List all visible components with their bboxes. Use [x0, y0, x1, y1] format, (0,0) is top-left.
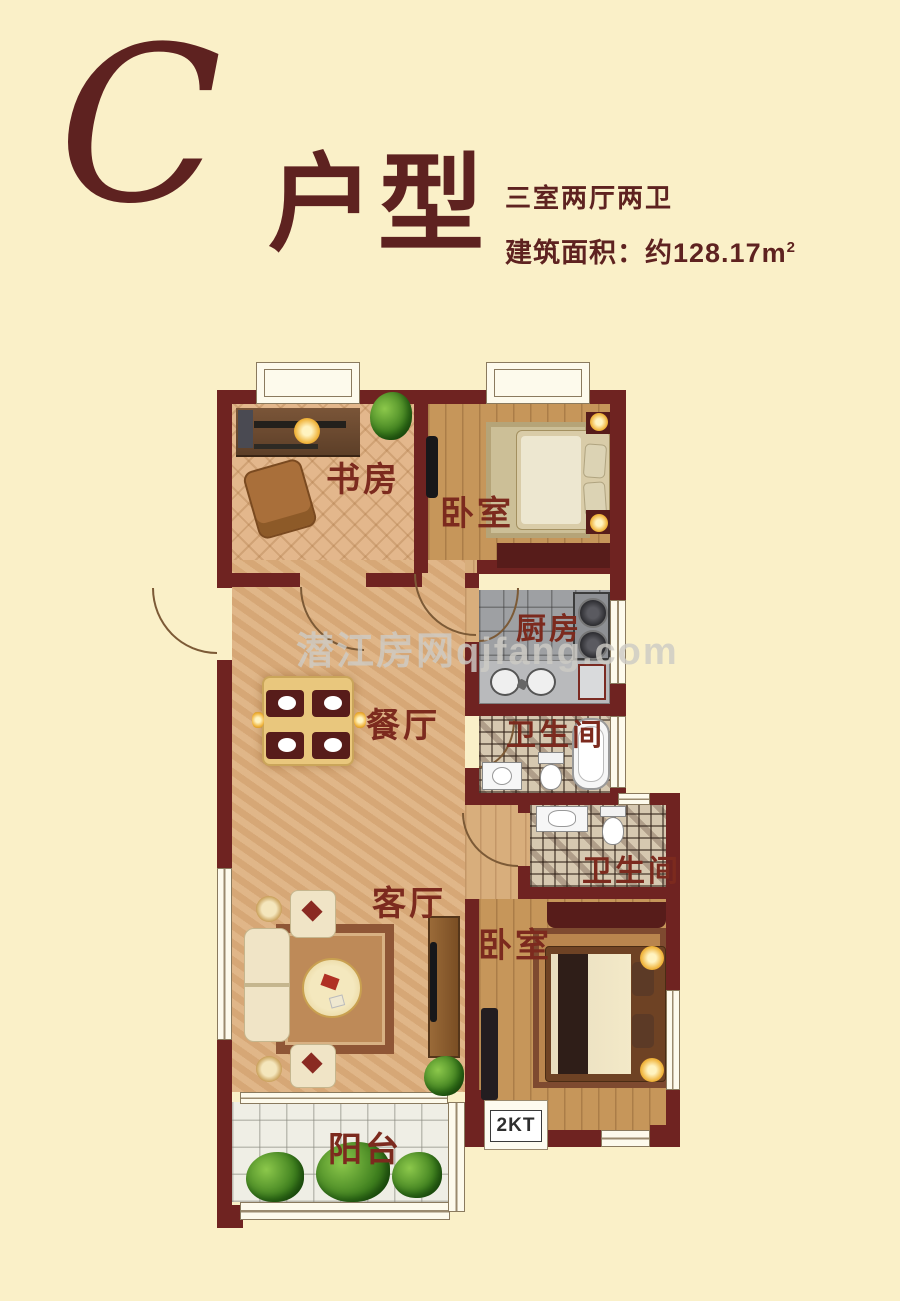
bath-bottom-sink-basin	[548, 810, 576, 827]
dining-side-item-right	[354, 712, 366, 728]
bedroom-bottom-pillow-2	[632, 1014, 654, 1048]
toilet-top-bowl	[540, 764, 562, 790]
wall-left-lower	[217, 1040, 232, 1228]
balcony-railing-bottom	[240, 1202, 450, 1220]
dining-plate-3	[278, 738, 296, 752]
bay-window-study-inner	[264, 369, 352, 397]
room-label-study: 书房	[326, 452, 400, 501]
entry-door-arc	[152, 588, 217, 654]
bedroom-bottom-dresser	[547, 902, 666, 928]
bedroom-top-mattress	[521, 436, 581, 524]
balcony-sliding-door	[240, 1092, 448, 1104]
bedroom-top-dresser	[497, 543, 610, 568]
window-bedroom-bottom-right	[666, 990, 680, 1090]
wall-left-middle	[217, 660, 232, 870]
window-bedroom-bottom-bottom	[601, 1130, 650, 1147]
dining-plate-2	[324, 696, 342, 710]
study-plant	[370, 392, 412, 440]
toilet-bottom-tank	[600, 806, 626, 817]
bedroom-top-pillow-1	[583, 443, 607, 478]
study-lamp	[294, 418, 320, 444]
bedroom-bottom-blanket	[558, 954, 588, 1074]
area-text: 建筑面积：约128.17m2	[505, 231, 796, 270]
balcony-plant-1	[246, 1152, 304, 1202]
area-value: 128.17m	[673, 238, 787, 268]
watermark: 潜江房网qjfang.com	[296, 620, 679, 675]
living-plant	[424, 1056, 464, 1096]
wall-study-bottom-left	[217, 573, 300, 587]
sofa-main	[244, 928, 290, 1042]
dining-side-item-left	[252, 712, 264, 728]
dining-plate-4	[324, 738, 342, 752]
study-shelf-2	[254, 444, 318, 449]
page-title: 户型	[268, 118, 488, 272]
bedroom-bottom-lamp-1	[640, 946, 664, 970]
window-bath-bottom	[618, 793, 650, 805]
entry-opening	[217, 588, 232, 660]
wall-bath-bottom-left	[518, 866, 530, 899]
wall-right-upper	[610, 390, 626, 600]
wall-bath-top-bottom-a	[465, 793, 618, 805]
ac-platform-label: 2KT	[490, 1110, 542, 1142]
study-cabinet	[238, 410, 253, 448]
room-label-bedroom-top: 卧室	[440, 486, 514, 535]
bedroom-top-tv	[426, 436, 438, 498]
wall-bath-top-bottom-b	[650, 793, 680, 805]
bath-top-sink-basin	[492, 767, 512, 785]
balcony-railing-right	[448, 1102, 465, 1212]
room-label-dining: 餐厅	[366, 698, 440, 747]
header-info: 三室两厅两卫 建筑面积：约128.17m2	[505, 178, 796, 270]
living-lamp-bottom	[256, 1056, 282, 1082]
wall-bath-bottom-left-stub	[518, 805, 530, 813]
wall-bedroom-bottom-left	[465, 899, 479, 1105]
spec-text: 三室两厅两卫	[505, 178, 796, 215]
dining-plate-1	[278, 696, 296, 710]
wall-left-upper	[217, 390, 232, 590]
area-superscript: 2	[787, 239, 796, 256]
room-label-bath-bottom: 卫生间	[582, 846, 681, 890]
room-label-bedroom-bottom: 卧室	[478, 918, 552, 967]
toilet-bottom-bowl	[602, 817, 624, 845]
bedroom-bottom-lamp-2	[640, 1058, 664, 1082]
wall-bottom-right-corner	[650, 1125, 680, 1147]
room-label-bath-top: 卫生间	[506, 710, 605, 754]
room-label-balcony: 阳台	[328, 1122, 402, 1171]
wall-bedroom-bottom-bottom	[545, 1130, 601, 1147]
bedroom-top-lamp-2	[590, 514, 608, 532]
bedroom-bottom-wardrobe	[481, 1008, 498, 1100]
window-living-left	[217, 868, 232, 1040]
living-lamp-top	[256, 896, 282, 922]
bay-window-bedroom-inner	[494, 369, 582, 397]
area-label: 建筑面积：约	[505, 238, 673, 268]
bedroom-top-lamp-1	[590, 413, 608, 431]
room-label-living: 客厅	[372, 876, 446, 925]
window-bath-top	[610, 716, 626, 788]
wall-right-lower-upper	[666, 805, 680, 990]
living-tv	[430, 942, 437, 1022]
plan-letter: C	[58, 18, 223, 233]
